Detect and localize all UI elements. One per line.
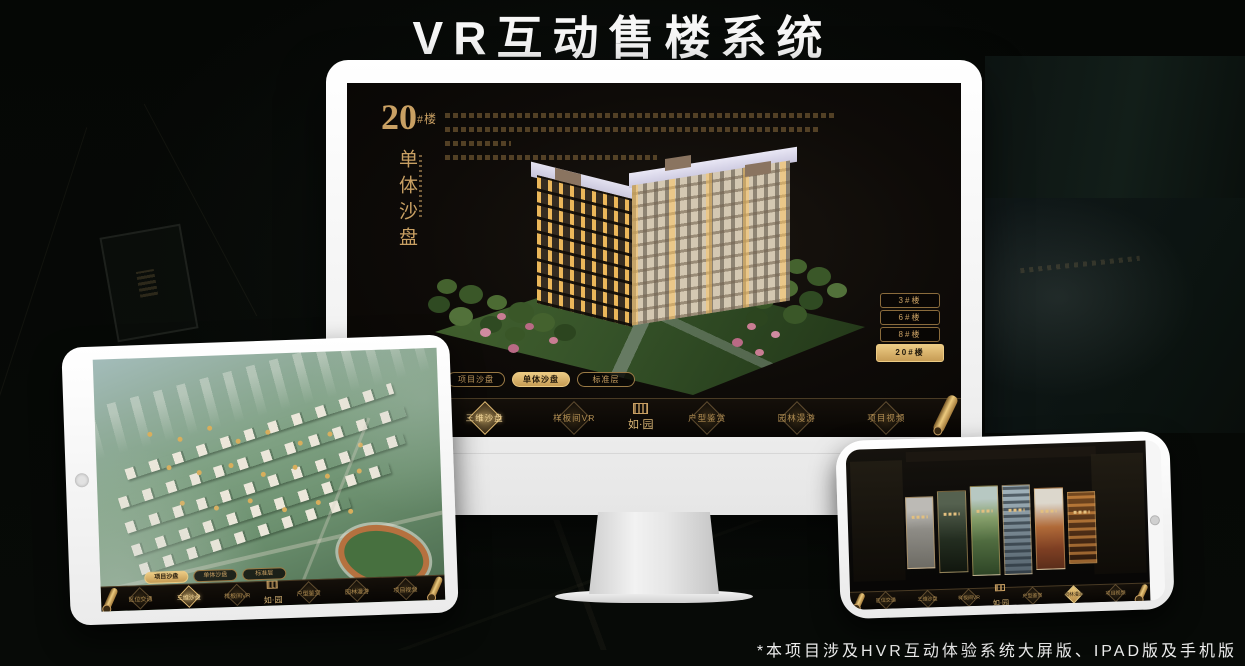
seal-icon — [267, 580, 278, 588]
nav-label: 户型鉴赏 — [296, 587, 320, 597]
floor-button-3[interactable]: 3#楼 — [880, 293, 940, 308]
nav-item-garden-tour[interactable]: 园林漫游 — [335, 579, 380, 603]
nav-item-location[interactable]: 区位交通 — [868, 592, 904, 608]
nav-item-garden-tour[interactable]: 园林漫游 — [1056, 586, 1092, 602]
scene-card-landscape[interactable] — [969, 485, 1000, 576]
page-title: VR互动售楼系统 — [0, 2, 1245, 68]
brand-logo-text: 如·园 — [628, 419, 654, 431]
building-model[interactable] — [537, 173, 797, 328]
interior-left-structure — [850, 460, 906, 582]
subtab-standard-floor[interactable]: 标准层 — [242, 567, 286, 581]
nav-item-showroom-vr[interactable]: 样板间VR — [538, 401, 610, 435]
nav-item-floorplans[interactable]: 户型鉴赏 — [286, 581, 331, 605]
interior-right-structure — [1091, 453, 1147, 575]
block-subtitle-microtext — [419, 153, 422, 217]
block-heading: 20#楼 — [381, 99, 437, 135]
scroll-handle-icon[interactable] — [427, 576, 443, 601]
nav-item-3d-sandtable[interactable]: 三维沙盘 — [449, 401, 521, 435]
monitor-stand — [589, 512, 719, 594]
seal-icon — [633, 403, 648, 414]
scroll-handle-icon[interactable] — [932, 394, 959, 435]
nav-label: 园林漫游 — [1064, 591, 1084, 599]
scene-card-night-garden[interactable] — [937, 490, 968, 573]
nav-item-showroom-vr[interactable]: 样板间VR — [951, 590, 987, 606]
phone-screen: 区位交通 三维沙盘 样板间VR 如·园 — [846, 441, 1152, 610]
nav-item-project-video[interactable]: 项目视频 — [1097, 585, 1133, 601]
block-number: 20 — [381, 97, 417, 137]
nav-label: 户型鉴赏 — [688, 412, 726, 424]
nav-item-floorplans[interactable]: 户型鉴赏 — [1014, 588, 1050, 604]
nav-label: 区位交通 — [876, 596, 896, 604]
scroll-handle-icon[interactable] — [853, 592, 866, 610]
nav-item-project-video[interactable]: 项目视频 — [383, 577, 428, 601]
nav-item-floorplans[interactable]: 户型鉴赏 — [671, 401, 743, 435]
scene-card-building[interactable] — [1002, 484, 1033, 575]
brand-logo-text: 如·园 — [264, 595, 283, 605]
intro-text-line — [445, 113, 837, 118]
nav-label: 园林漫游 — [345, 586, 369, 596]
scene-card-interior[interactable] — [1067, 491, 1098, 564]
phone-device: 区位交通 三维沙盘 样板间VR 如·园 — [835, 431, 1174, 619]
floor-button-8[interactable]: 8#楼 — [880, 327, 940, 342]
block-subtitle-vertical: 单体沙盘 — [393, 149, 420, 253]
flowers-left — [497, 313, 506, 320]
nav-item-project-video[interactable]: 项目视频 — [850, 401, 922, 435]
subtab-single-sandtable[interactable]: 单体沙盘 — [193, 569, 237, 583]
block-number-suffix: #楼 — [417, 112, 437, 126]
nav-item-location[interactable]: 区位交通 — [118, 586, 163, 610]
subtab-standard-floor[interactable]: 标准层 — [577, 372, 635, 387]
nav-label: 三维沙盘 — [917, 595, 937, 603]
nav-label: 项目视频 — [393, 584, 417, 594]
tablet-screen: 项目沙盘 单体沙盘 标准层 区位交通 三维沙盘 — [93, 348, 446, 612]
background-collage-river — [985, 198, 1245, 433]
brand-logo-text: 如·园 — [993, 598, 1010, 607]
nav-label: 三维沙盘 — [177, 592, 201, 602]
nav-label: 样板间VR — [958, 594, 980, 602]
seal-icon — [995, 584, 1005, 591]
home-button[interactable] — [75, 473, 89, 487]
scroll-handle-icon[interactable] — [1136, 583, 1149, 602]
phone-frame: 区位交通 三维沙盘 样板间VR 如·园 — [835, 431, 1174, 619]
trees-left — [437, 279, 457, 294]
nav-label: 三维沙盘 — [466, 412, 504, 424]
brand-logo: 如·园 — [263, 580, 283, 608]
phone-navbar: 区位交通 三维沙盘 样板间VR 如·园 — [850, 582, 1151, 609]
scene-card-courtyard[interactable] — [905, 496, 936, 569]
scene-card-autumn[interactable] — [1034, 487, 1065, 570]
nav-label: 样板间VR — [553, 412, 595, 424]
brand-logo: 如·园 — [628, 403, 654, 433]
building-facade-right — [632, 160, 790, 325]
floor-button-20[interactable]: 20#楼 — [876, 344, 944, 362]
monitor-subtabs: 项目沙盘 单体沙盘 标准层 — [447, 372, 635, 387]
nav-item-3d-sandtable[interactable]: 三维沙盘 — [166, 585, 211, 609]
poster-canvas: VR互动售楼系统 20#楼 单体沙盘 — [0, 0, 1245, 666]
scroll-handle-icon[interactable] — [102, 587, 118, 612]
nav-label: 户型鉴赏 — [1022, 592, 1042, 600]
building-facade-left — [537, 175, 632, 327]
subtab-project-sandtable[interactable]: 项目沙盘 — [144, 571, 188, 585]
intro-text-line — [445, 141, 511, 146]
intro-text-line — [445, 127, 821, 132]
nav-item-3d-sandtable[interactable]: 三维沙盘 — [909, 591, 945, 607]
nav-item-showroom-vr[interactable]: 样板间VR — [215, 583, 260, 607]
tablet-frame: 项目沙盘 单体沙盘 标准层 区位交通 三维沙盘 — [61, 334, 458, 625]
nav-label: 样板间VR — [224, 590, 251, 600]
interior-eave — [906, 446, 1096, 462]
scene-carousel — [905, 478, 1098, 582]
nav-label: 区位交通 — [128, 593, 152, 603]
subtab-project-sandtable[interactable]: 项目沙盘 — [447, 372, 505, 387]
background-collage-top — [985, 56, 1245, 198]
floor-button-6[interactable]: 6#楼 — [880, 310, 940, 325]
nav-label: 园林漫游 — [778, 412, 816, 424]
nav-item-garden-tour[interactable]: 园林漫游 — [761, 401, 833, 435]
intro-text-line — [445, 155, 657, 160]
brand-logo: 如·园 — [992, 583, 1009, 609]
tablet-device: 项目沙盘 单体沙盘 标准层 区位交通 三维沙盘 — [61, 334, 458, 625]
subtab-single-sandtable[interactable]: 单体沙盘 — [512, 372, 570, 387]
footnote-text: *本项目涉及HVR互动体验系统大屏版、IPAD版及手机版 — [757, 637, 1237, 661]
nav-label: 项目视频 — [1105, 589, 1125, 597]
nav-label: 项目视频 — [867, 412, 905, 424]
